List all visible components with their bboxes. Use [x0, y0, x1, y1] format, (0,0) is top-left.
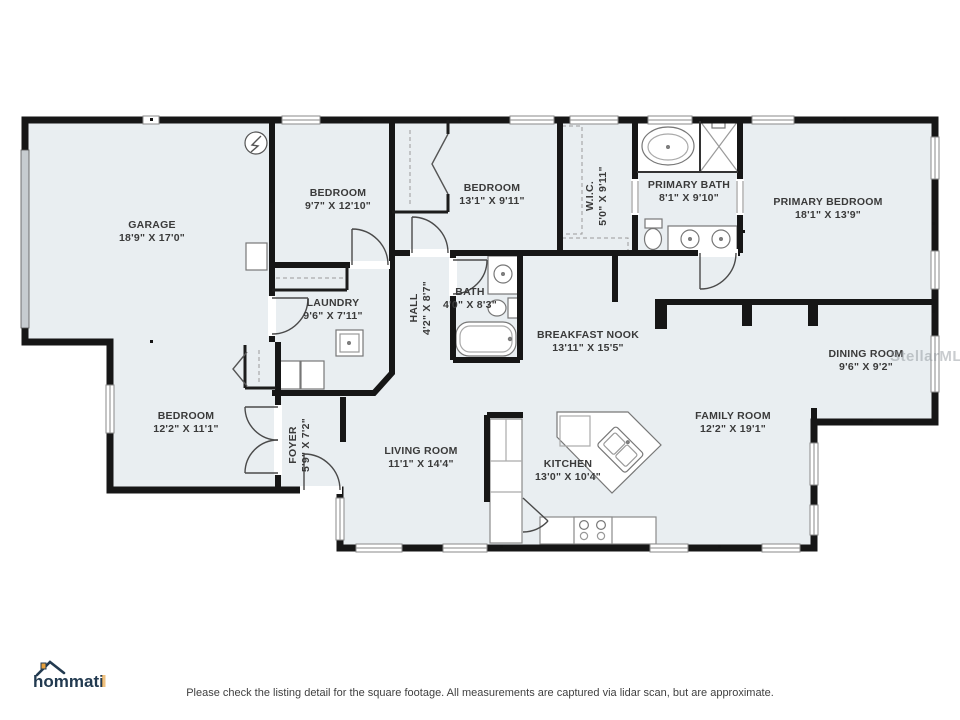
pantry-cabinet: [490, 419, 522, 543]
dryer-icon: [301, 361, 324, 389]
room-label-bedroom3: BEDROOM13'1" X 9'11": [459, 182, 525, 208]
bathtub-icon: [456, 322, 516, 356]
room-label-garage: GARAGE18'9" X 17'0": [119, 219, 185, 245]
mls-watermark: StellarMLS: [890, 348, 960, 365]
toilet-icon: [645, 219, 663, 250]
room-label-foyer: FOYER5'9" X 7'2": [287, 418, 313, 472]
room-label-kitchen: KITCHEN13'0" X 10'4": [535, 458, 601, 484]
room-label-hall: HALL4'2" X 8'7": [408, 281, 434, 335]
floor-plan-drawing: [0, 0, 960, 720]
garage-door: [21, 150, 29, 328]
room-label-laundry: LAUNDRY9'6" X 7'11": [303, 297, 362, 323]
double-vanity-icon: [668, 226, 737, 252]
water-heater-icon: [246, 243, 267, 270]
bathtub-icon: [637, 121, 700, 172]
electrical-panel-icon: [245, 132, 267, 154]
room-label-primary-bath: PRIMARY BATH8'1" X 9'10": [648, 179, 730, 205]
room-label-primary-bedroom: PRIMARY BEDROOM18'1" X 13'9": [773, 196, 882, 222]
room-label-bedroom2: BEDROOM9'7" X 12'10": [305, 187, 371, 213]
floor-plan-page: GARAGE18'9" X 17'0" BEDROOM9'7" X 12'10"…: [0, 0, 960, 720]
stove-icon: [574, 517, 612, 544]
logo-accent-bar: [102, 675, 106, 687]
room-label-bedroom4: BEDROOM12'2" X 11'1": [153, 410, 219, 436]
room-label-bath: BATH4'0" X 8'3": [443, 286, 497, 312]
disclaimer-text: Please check the listing detail for the …: [0, 687, 960, 699]
shower-icon: [700, 121, 738, 172]
room-label-living-room: LIVING ROOM11'1" X 14'4": [384, 445, 457, 471]
room-label-breakfast-nook: BREAKFAST NOOK13'11" X 15'5": [537, 329, 639, 355]
room-label-wic: W.I.C.5'0" X 9'11": [584, 166, 610, 225]
room-label-family-room: FAMILY ROOM12'2" X 19'1": [695, 410, 771, 436]
utility-sink-icon: [336, 330, 363, 356]
